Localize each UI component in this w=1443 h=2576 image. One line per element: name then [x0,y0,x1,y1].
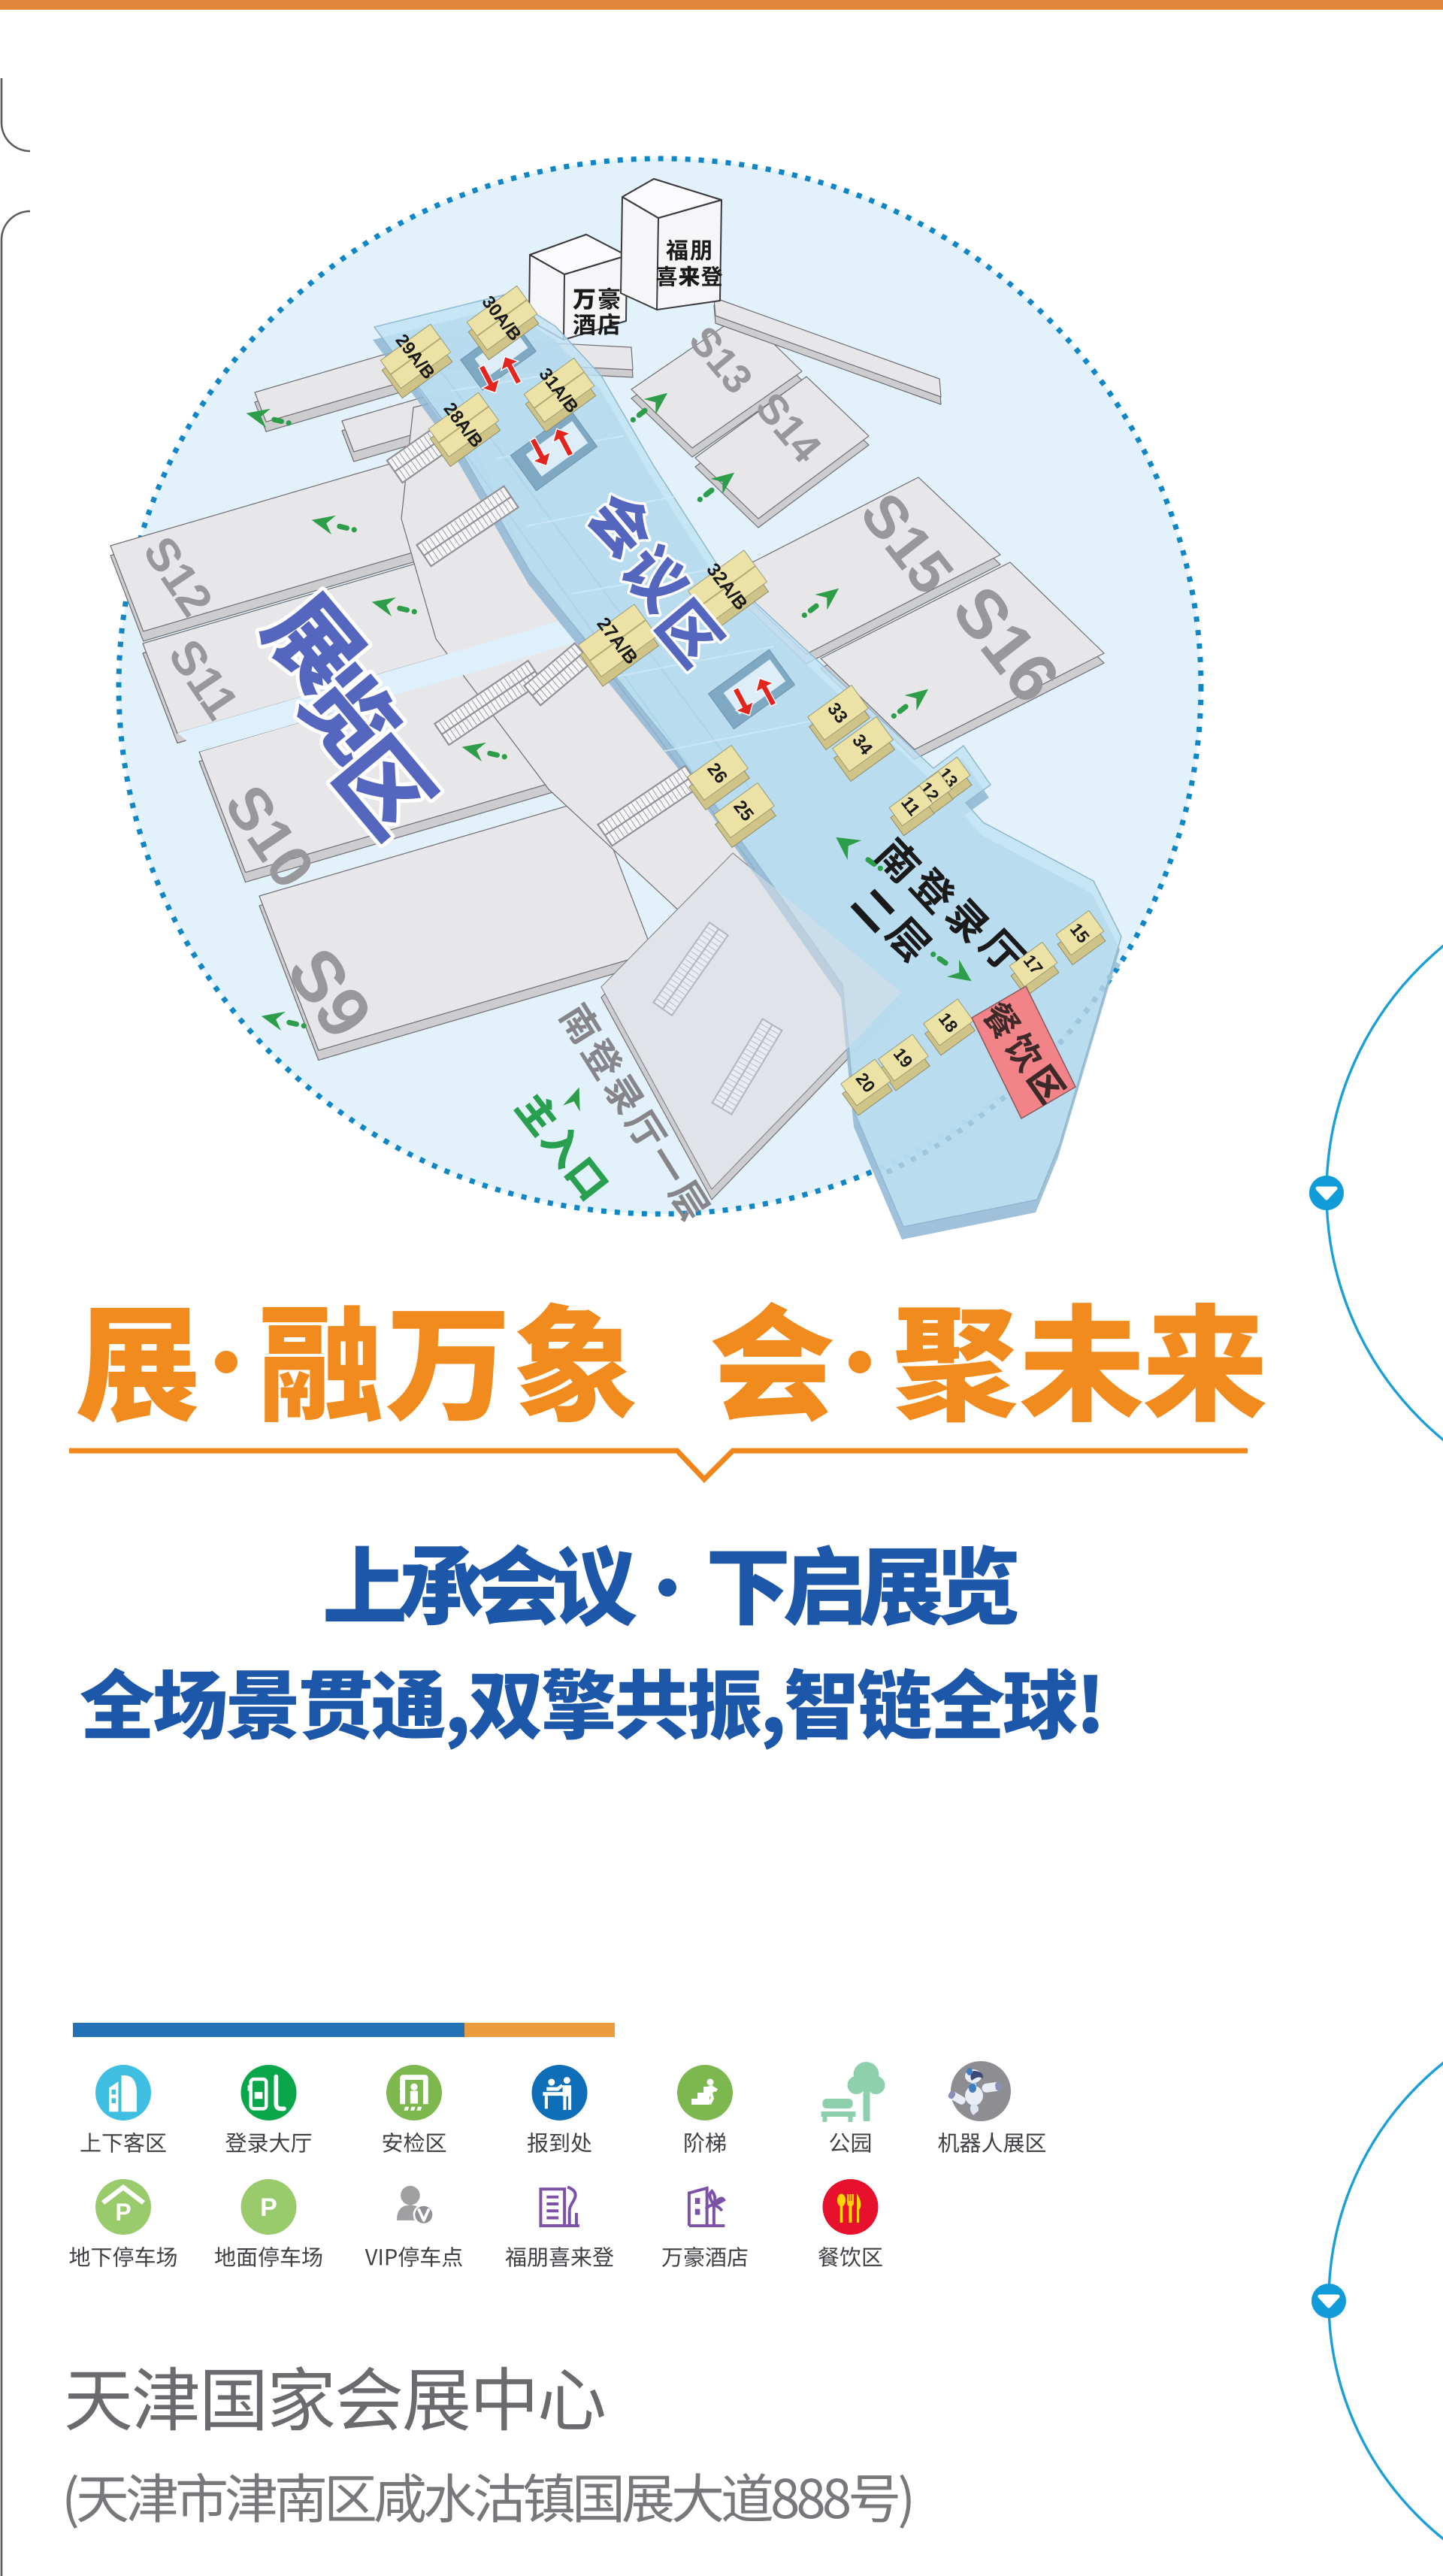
svg-text:P: P [260,2193,277,2222]
svg-text:P: P [115,2199,131,2226]
